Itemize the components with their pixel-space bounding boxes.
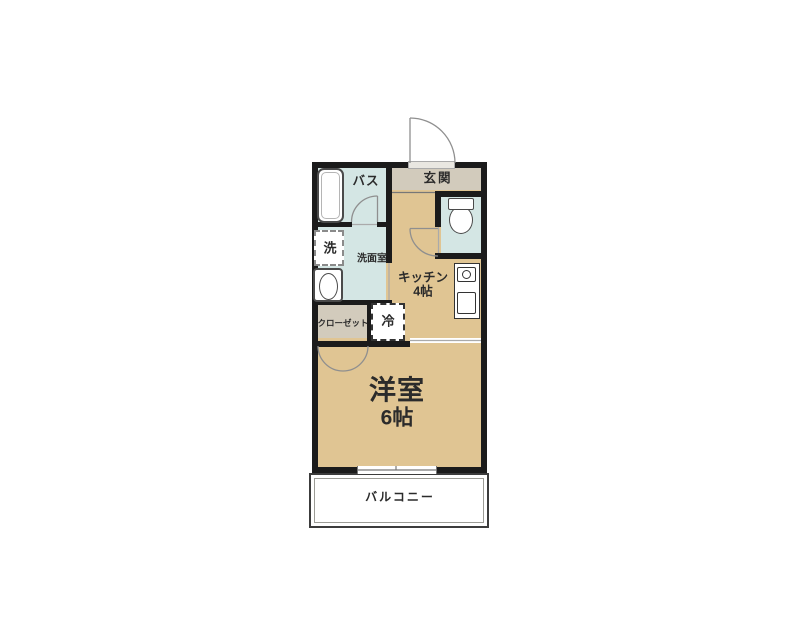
wall-right [481,162,487,473]
fridge-label: 冷 [381,315,394,330]
window-south [357,466,437,474]
washroom-label: 洗面室 [357,253,387,265]
entrance-label: 玄関 [423,171,452,185]
wall-closet-bottom [312,341,410,347]
western-room-name: 洋室 [369,375,425,406]
toilet-tank [448,198,474,210]
kitchen-size: 4帖 [413,285,432,299]
bath-label: バス [352,174,379,188]
toilet-bowl [449,206,473,234]
closet-label: クローゼット [317,319,368,329]
kitchen-stove [457,267,476,282]
wall-toilet-bottom [435,253,481,259]
western-room-label: 洋室 6帖 [369,375,425,430]
entrance-door-sill [408,161,455,169]
bathtub-inner-line [321,172,340,219]
wall-toilet-left [435,191,441,227]
kitchen-western-threshold [410,338,481,343]
balcony-label: バルコニー [365,491,435,505]
wall-bottom-left [312,467,357,473]
vanity-basin [319,273,338,300]
wall-bottom-right [437,467,487,473]
kitchen-label: キッチン 4帖 [398,271,448,300]
kitchen-counter [454,263,480,319]
western-room-size: 6帖 [369,406,425,430]
wall-bath-bottom-b [377,222,392,227]
washer-label: 洗 [323,242,336,257]
vanity-sink [313,268,343,302]
wall-toilet-top [438,191,481,197]
kitchen-name: キッチン [398,271,448,285]
kitchen-sink [457,292,476,314]
bathtub [317,168,344,223]
wall-bath-kitchen [386,162,392,263]
entrance-door-arc [410,118,455,163]
floor-plan: 玄関 バス 洗 洗面室 キッチン 4帖 冷 クローゼット 洋室 6帖 バルコニー [0,0,795,636]
kitchen-stove-burner [462,270,471,279]
